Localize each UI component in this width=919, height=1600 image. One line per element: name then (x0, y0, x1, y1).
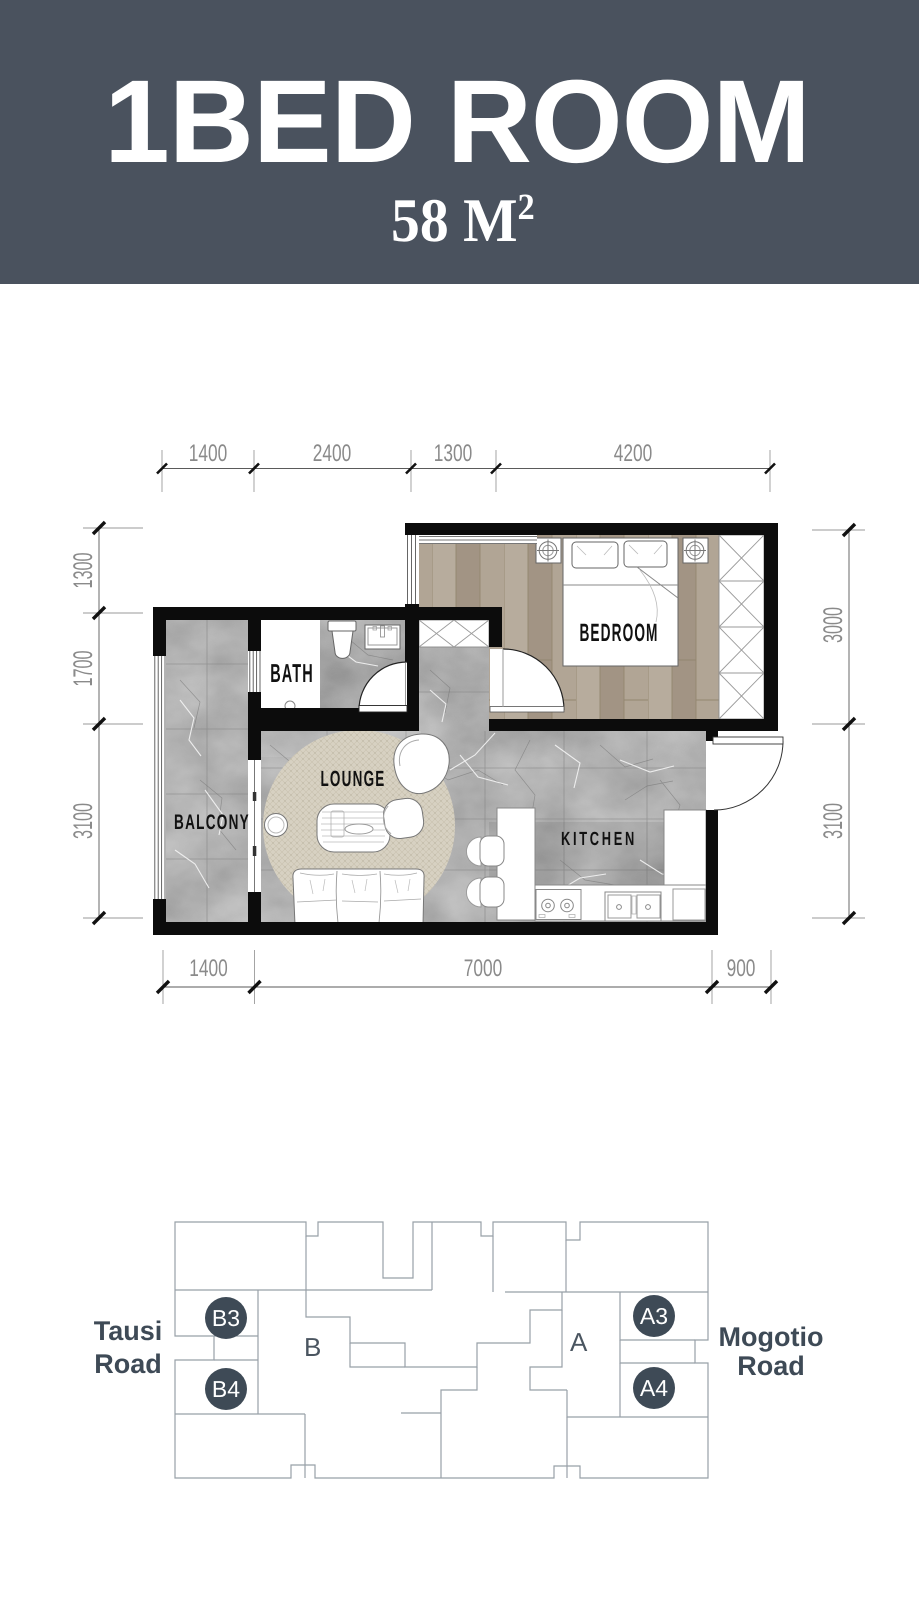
svg-text:Road: Road (94, 1349, 162, 1379)
svg-text:1300: 1300 (434, 440, 472, 467)
svg-text:1BED ROOM: 1BED ROOM (104, 56, 810, 188)
svg-text:3100: 3100 (68, 803, 98, 839)
svg-text:4200: 4200 (614, 440, 652, 467)
svg-text:1700: 1700 (68, 650, 98, 686)
svg-text:A: A (570, 1327, 588, 1357)
svg-text:7000: 7000 (464, 955, 502, 982)
svg-text:BALCONY: BALCONY (174, 811, 250, 834)
svg-text:B: B (304, 1332, 321, 1362)
svg-text:B3: B3 (212, 1305, 240, 1331)
svg-text:1300: 1300 (68, 552, 98, 588)
svg-text:3000: 3000 (818, 607, 848, 643)
svg-text:3100: 3100 (818, 803, 848, 839)
svg-text:Mogotio: Mogotio (719, 1322, 824, 1352)
svg-text:1400: 1400 (189, 955, 227, 982)
svg-text:B4: B4 (212, 1376, 240, 1402)
svg-text:A4: A4 (640, 1375, 668, 1401)
svg-text:BATH: BATH (270, 658, 314, 688)
svg-text:900: 900 (727, 955, 756, 982)
svg-text:KITCHEN: KITCHEN (561, 829, 637, 850)
svg-text:Tausi: Tausi (94, 1316, 163, 1346)
svg-text:Road: Road (737, 1351, 805, 1381)
svg-text:2400: 2400 (313, 440, 351, 467)
svg-text:58 M2: 58 M2 (391, 187, 535, 255)
svg-text:1400: 1400 (189, 440, 227, 467)
svg-text:LOUNGE: LOUNGE (320, 766, 385, 791)
svg-text:BEDROOM: BEDROOM (579, 619, 658, 647)
svg-text:A3: A3 (640, 1303, 668, 1329)
